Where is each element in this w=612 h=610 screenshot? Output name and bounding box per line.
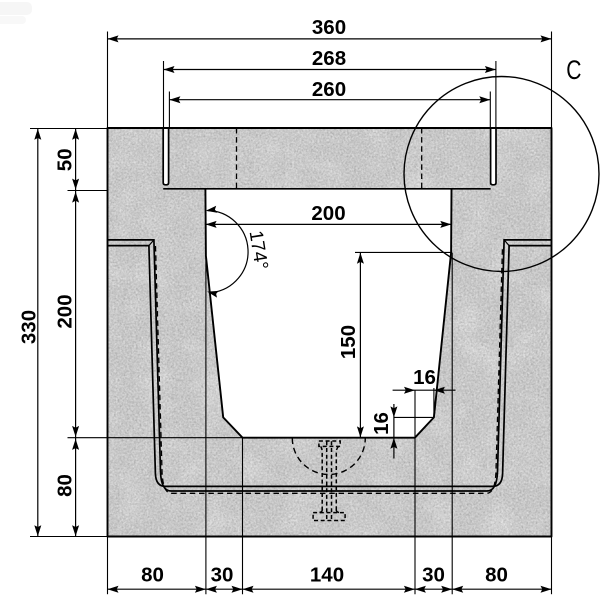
svg-text:30: 30 <box>422 564 445 587</box>
svg-text:16: 16 <box>370 412 393 435</box>
svg-text:200: 200 <box>311 202 345 225</box>
svg-text:16: 16 <box>413 366 436 389</box>
svg-text:80: 80 <box>54 474 77 497</box>
svg-text:260: 260 <box>312 78 346 101</box>
svg-text:30: 30 <box>211 564 234 587</box>
svg-text:140: 140 <box>310 564 344 587</box>
svg-text:80: 80 <box>141 564 164 587</box>
svg-text:80: 80 <box>485 564 508 587</box>
svg-text:268: 268 <box>312 47 346 70</box>
svg-text:360: 360 <box>312 16 346 39</box>
svg-text:200: 200 <box>54 294 77 328</box>
svg-text:50: 50 <box>54 148 77 171</box>
svg-text:150: 150 <box>337 325 360 359</box>
svg-text:C: C <box>566 55 581 85</box>
svg-text:330: 330 <box>18 310 41 344</box>
